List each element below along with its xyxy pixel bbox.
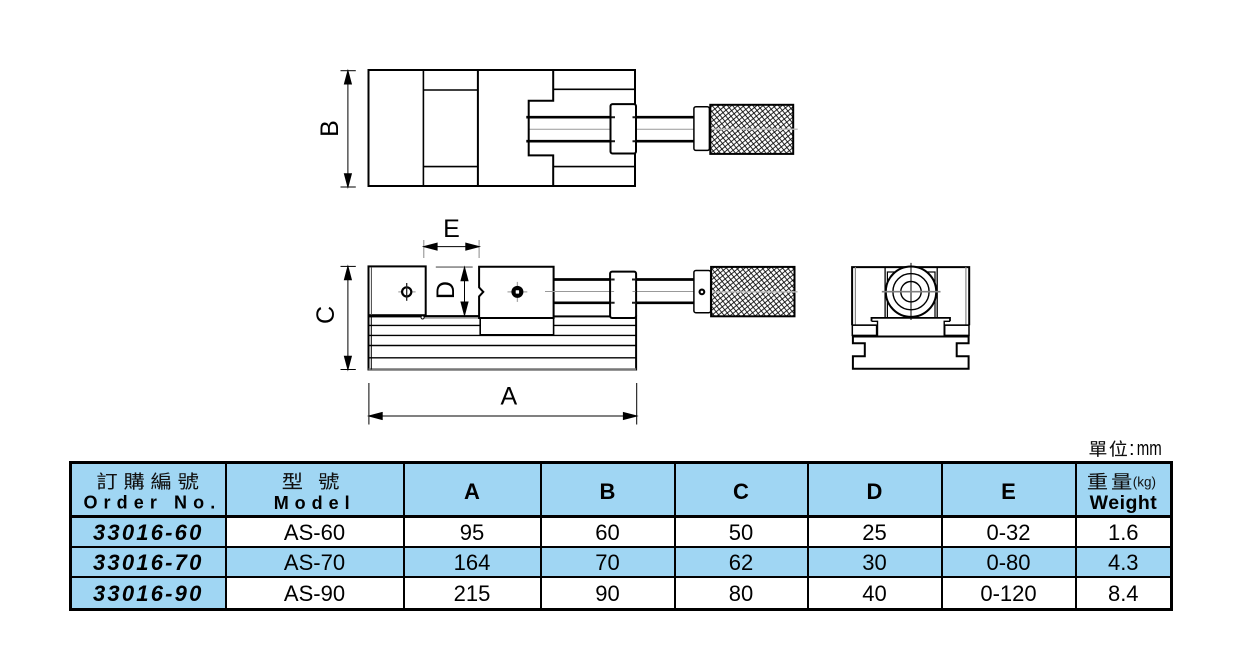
svg-text:D: D bbox=[432, 281, 460, 299]
svg-text:E: E bbox=[443, 215, 460, 243]
svg-text:B: B bbox=[316, 120, 344, 137]
svg-text:C: C bbox=[312, 306, 340, 324]
svg-text:A: A bbox=[500, 383, 517, 411]
